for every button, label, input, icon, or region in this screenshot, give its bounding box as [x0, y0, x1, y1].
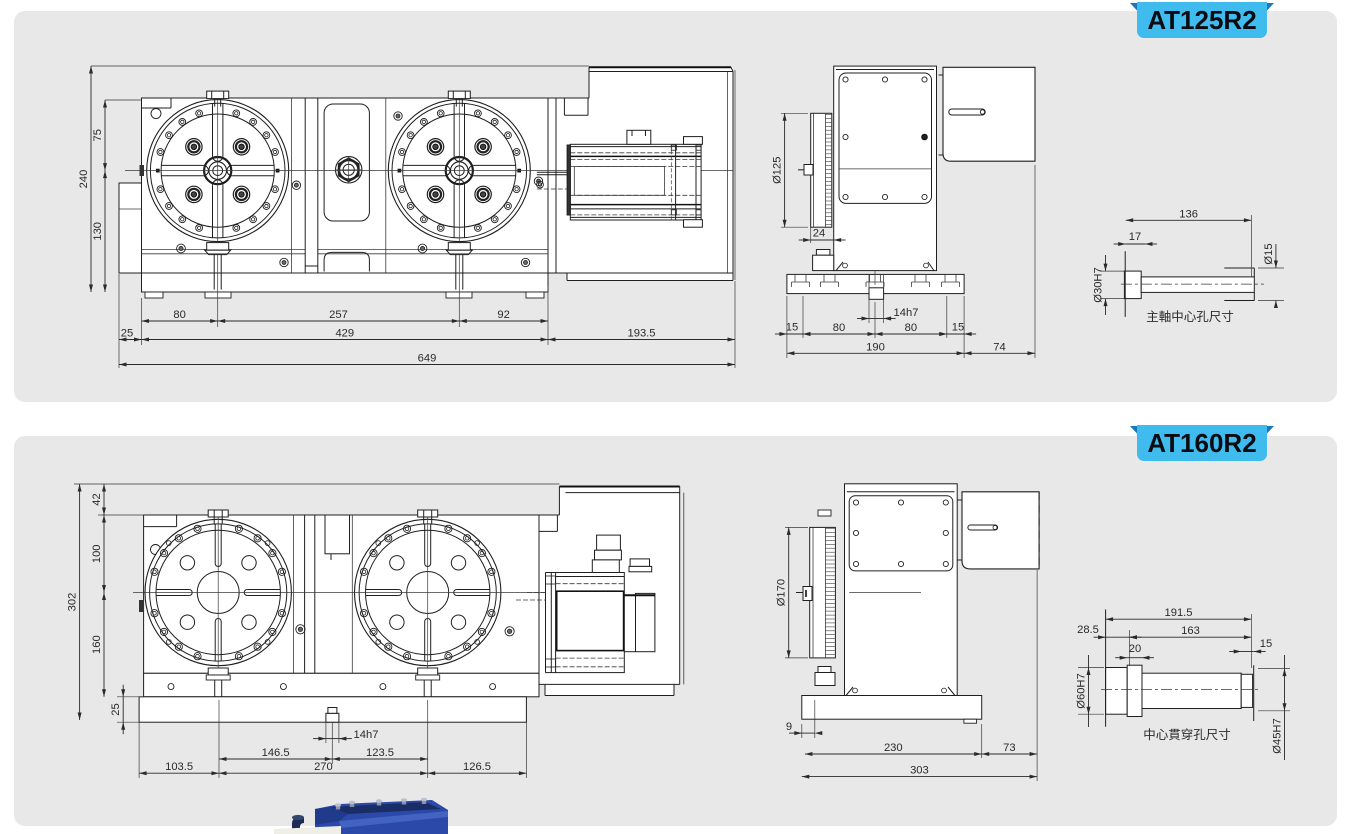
svg-text:270: 270 — [314, 761, 333, 773]
svg-text:AT125R2: AT125R2 — [1147, 5, 1256, 35]
svg-text:130: 130 — [92, 222, 104, 241]
svg-text:73: 73 — [1003, 742, 1015, 754]
svg-text:中心貫穿孔尺寸: 中心貫穿孔尺寸 — [1143, 727, 1231, 742]
svg-text:15: 15 — [786, 322, 798, 334]
svg-text:Ø60H7: Ø60H7 — [1076, 673, 1088, 708]
svg-text:80: 80 — [905, 322, 917, 334]
svg-text:Ø30H7: Ø30H7 — [1093, 267, 1105, 302]
svg-text:Ø125: Ø125 — [772, 157, 784, 184]
svg-text:25: 25 — [110, 703, 122, 715]
svg-text:Ø15: Ø15 — [1263, 243, 1275, 264]
svg-text:230: 230 — [884, 742, 903, 754]
svg-text:160: 160 — [91, 635, 103, 654]
svg-text:126.5: 126.5 — [463, 761, 491, 773]
svg-text:15: 15 — [952, 322, 964, 334]
svg-text:190: 190 — [866, 341, 885, 353]
svg-text:80: 80 — [173, 309, 185, 321]
svg-text:80: 80 — [833, 322, 845, 334]
svg-text:303: 303 — [910, 765, 929, 777]
svg-text:14h7: 14h7 — [354, 729, 379, 741]
svg-text:17: 17 — [1129, 231, 1141, 243]
svg-text:15: 15 — [1260, 638, 1272, 650]
svg-text:20: 20 — [1129, 643, 1141, 655]
svg-text:75: 75 — [92, 129, 104, 141]
svg-text:136: 136 — [1179, 208, 1198, 220]
svg-text:92: 92 — [497, 309, 509, 321]
svg-text:Ø45H7: Ø45H7 — [1272, 718, 1284, 753]
svg-text:193.5: 193.5 — [628, 328, 656, 340]
svg-text:257: 257 — [329, 309, 348, 321]
svg-text:429: 429 — [335, 328, 354, 340]
svg-text:25: 25 — [121, 328, 133, 340]
svg-text:100: 100 — [91, 544, 103, 563]
svg-text:Ø170: Ø170 — [776, 579, 788, 606]
svg-text:14h7: 14h7 — [894, 307, 919, 319]
svg-text:649: 649 — [418, 353, 437, 365]
svg-text:123.5: 123.5 — [366, 747, 394, 759]
svg-text:9: 9 — [786, 721, 792, 733]
svg-text:302: 302 — [67, 593, 79, 612]
svg-text:163: 163 — [1181, 625, 1200, 637]
svg-text:AT160R2: AT160R2 — [1147, 428, 1256, 458]
svg-text:42: 42 — [91, 493, 103, 505]
svg-text:主軸中心孔尺寸: 主軸中心孔尺寸 — [1146, 309, 1234, 324]
svg-text:74: 74 — [993, 341, 1005, 353]
svg-text:103.5: 103.5 — [165, 761, 193, 773]
svg-text:240: 240 — [78, 170, 90, 189]
svg-text:24: 24 — [813, 228, 825, 240]
svg-text:146.5: 146.5 — [262, 747, 290, 759]
svg-text:28.5: 28.5 — [1077, 624, 1099, 636]
svg-text:191.5: 191.5 — [1165, 607, 1193, 619]
